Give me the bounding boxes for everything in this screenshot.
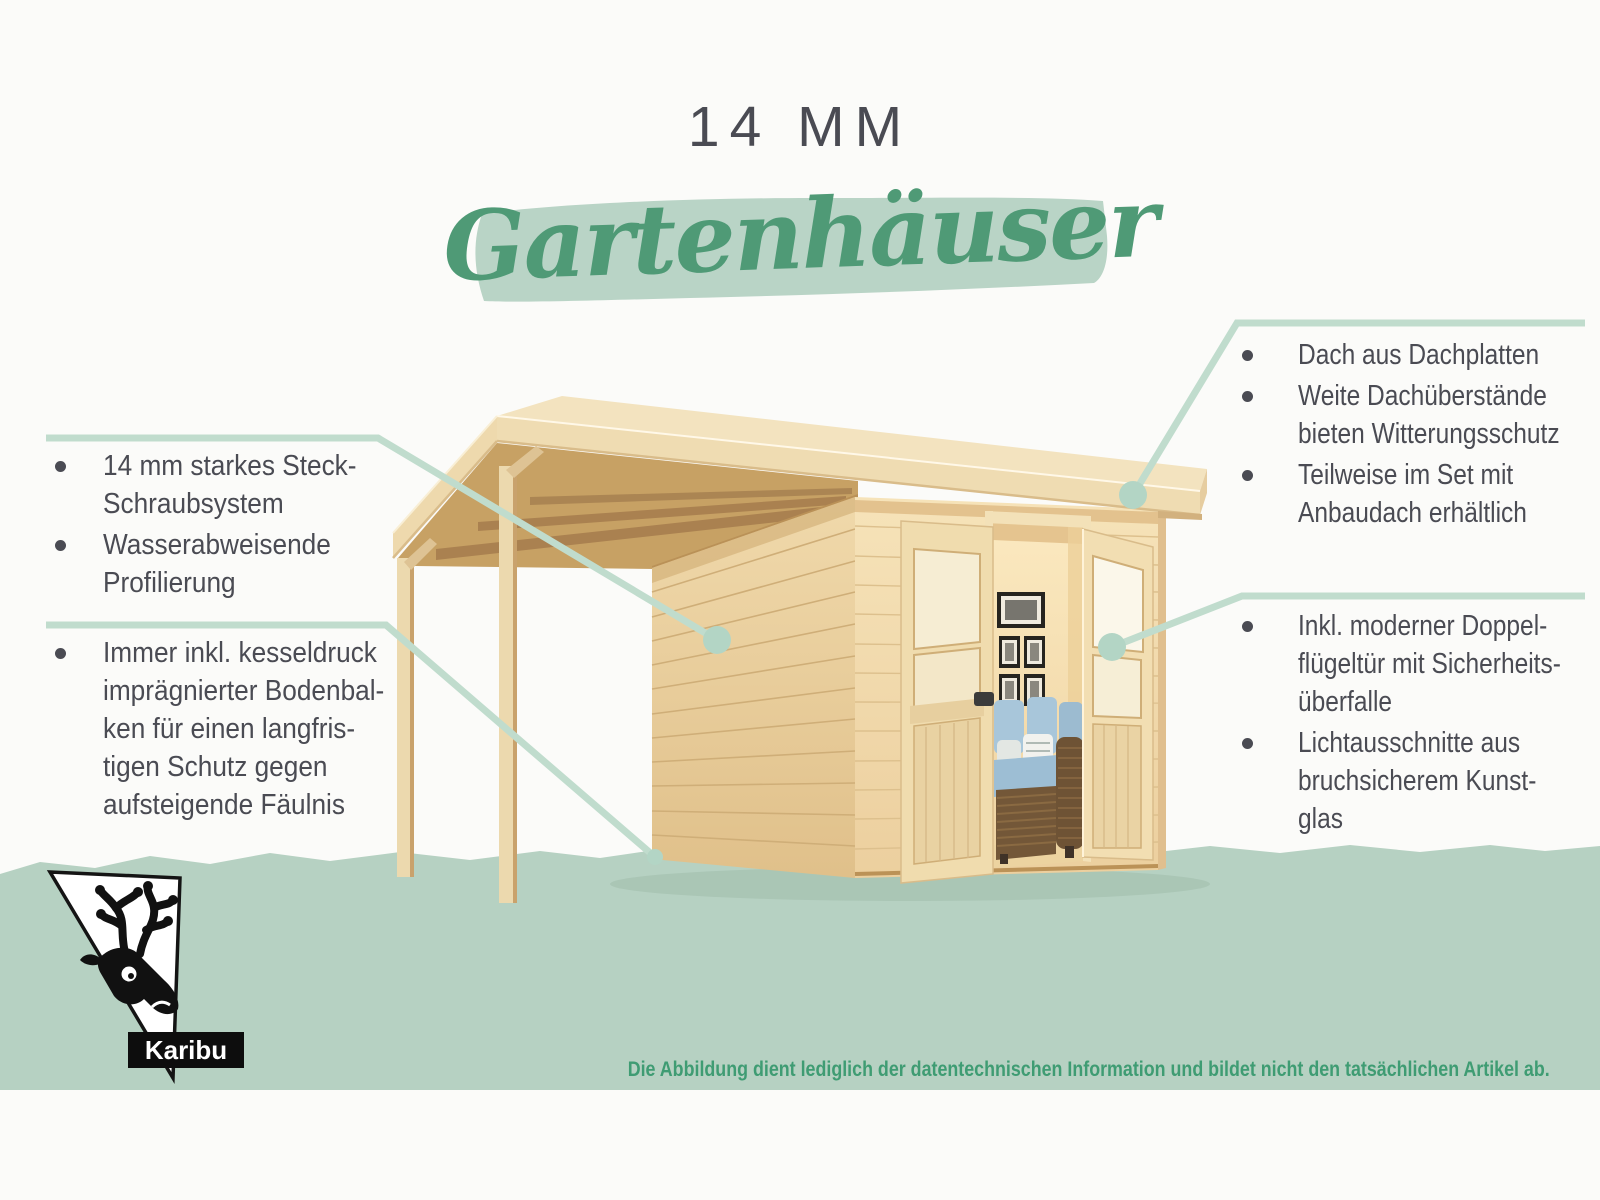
door-handle (974, 692, 994, 706)
bullet-text: Weite Dachüberstände bieten Witterungssc… (1298, 377, 1560, 453)
bullet-text: Wasserabweisende Profilierung (103, 526, 331, 602)
bullet-icon (1242, 350, 1253, 361)
bullet-icon (55, 461, 66, 472)
bullet-icon (55, 648, 66, 659)
infographic-page: Karibu 14 MM Gartenhäuser 14 mm starkes … (0, 0, 1600, 1200)
feature-list-left-top: 14 mm starkes Steck- Schraubsystem Wasse… (46, 444, 566, 602)
bullet-text: Inkl. moderner Doppel- flügeltür mit Sic… (1298, 607, 1561, 721)
bullet-text: Teilweise im Set mit Anbaudach erhältlic… (1298, 456, 1527, 532)
bullet-text: Dach aus Dachplatten (1298, 336, 1539, 374)
feature-list-right-bottom: Inkl. moderner Doppel- flügeltür mit Sic… (1232, 604, 1600, 838)
callout-dot (703, 626, 731, 654)
double-door-left-leaf (901, 521, 994, 883)
interior (993, 519, 1084, 868)
list-item: Lichtausschnitte aus bruchsicherem Kunst… (1232, 724, 1600, 838)
callout-dot (647, 849, 663, 865)
list-item: 14 mm starkes Steck- Schraubsystem (46, 447, 566, 523)
list-item: Wasserabweisende Profilierung (46, 526, 566, 602)
sofa (994, 697, 1084, 864)
bullet-text: Lichtausschnitte aus bruchsicherem Kunst… (1298, 724, 1536, 838)
feature-list-left-bottom: Immer inkl. kesseldruck imprägnierter Bo… (46, 631, 586, 824)
list-item: Weite Dachüberstände bieten Witterungssc… (1232, 377, 1600, 453)
list-item: Inkl. moderner Doppel- flügeltür mit Sic… (1232, 607, 1600, 721)
bullet-icon (1242, 391, 1253, 402)
page-title: 14 MM (0, 94, 1600, 160)
bullet-icon (55, 540, 66, 551)
callout-dot (1098, 633, 1126, 661)
list-item: Dach aus Dachplatten (1232, 336, 1600, 374)
double-door-right-leaf (1083, 529, 1153, 860)
bullet-icon (1242, 470, 1253, 481)
list-item: Teilweise im Set mit Anbaudach erhältlic… (1232, 456, 1600, 532)
disclaimer-text: Die Abbildung dient lediglich der datent… (628, 1058, 1550, 1082)
logo-wordmark: Karibu (145, 1035, 227, 1065)
bullet-icon (1242, 621, 1253, 632)
feature-list-right-top: Dach aus Dachplatten Weite Dachüberständ… (1232, 333, 1600, 532)
list-item: Immer inkl. kesseldruck imprägnierter Bo… (46, 634, 586, 824)
bullet-text: 14 mm starkes Steck- Schraubsystem (103, 447, 357, 523)
bullet-icon (1242, 738, 1253, 749)
callout-dot (1119, 481, 1147, 509)
bullet-text: Immer inkl. kesseldruck imprägnierter Bo… (103, 634, 384, 824)
